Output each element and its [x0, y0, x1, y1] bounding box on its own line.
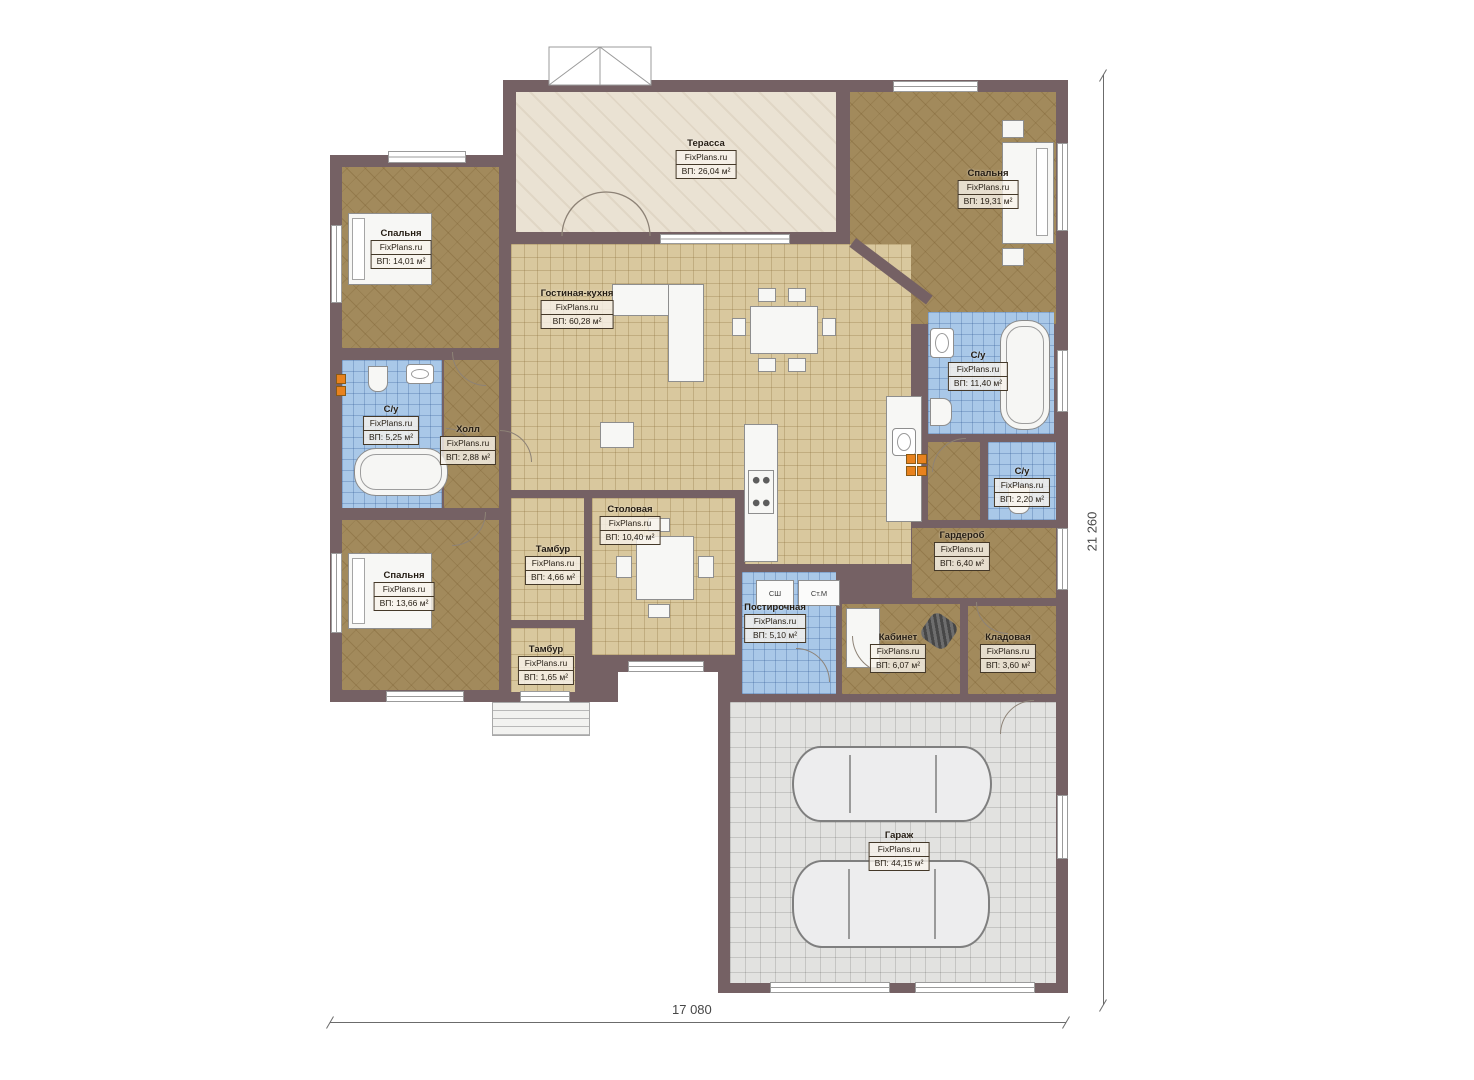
- radiator-marker: [906, 466, 916, 476]
- room-label-living-kitchen: Гостиная-кухня FixPlans.ru ВП: 60,28 м²: [541, 288, 614, 329]
- nightstand: [1002, 120, 1024, 138]
- chair: [648, 604, 670, 618]
- window: [893, 81, 978, 92]
- watermark: FixPlans.ru: [541, 300, 614, 315]
- bed-pillow: [1036, 148, 1048, 236]
- washer-label: Ст.М: [811, 589, 827, 598]
- room-name: Гардероб: [934, 530, 990, 541]
- room-area: ВП: 3,60 м²: [980, 658, 1036, 673]
- room-name: Холл: [440, 424, 496, 435]
- kitchen-sink: [892, 428, 916, 456]
- window: [386, 691, 464, 702]
- sofa: [668, 284, 704, 382]
- watermark: FixPlans.ru: [374, 582, 435, 597]
- window: [1057, 143, 1068, 231]
- bathtub: [354, 448, 448, 496]
- room-label-garage: Гараж FixPlans.ru ВП: 44,15 м²: [869, 830, 930, 871]
- room-name: Кабинет: [870, 632, 926, 643]
- car: [792, 746, 992, 822]
- watermark: FixPlans.ru: [948, 362, 1008, 377]
- watermark: FixPlans.ru: [934, 542, 990, 557]
- garage-door: [915, 982, 1035, 993]
- stove: [748, 470, 774, 514]
- bed-pillow: [352, 558, 365, 624]
- dryer-label: СШ: [769, 589, 781, 598]
- radiator-marker: [917, 454, 927, 464]
- terrace-opening: [660, 234, 790, 244]
- watermark: FixPlans.ru: [440, 436, 496, 451]
- dimension-label-width: 17 080: [672, 1002, 712, 1017]
- garage-door: [770, 982, 890, 993]
- room-name: Столовая: [600, 504, 661, 515]
- watermark: FixPlans.ru: [994, 478, 1050, 493]
- room-area: ВП: 14,01 м²: [371, 254, 432, 269]
- floor-plan: СШ Ст.М Терасса FixPlans.ru ВП: 26,04 м²…: [0, 0, 1474, 1080]
- watermark: FixPlans.ru: [525, 556, 581, 571]
- room-label-vestibule-2: Тамбур FixPlans.ru ВП: 1,65 м²: [518, 644, 574, 685]
- room-area: ВП: 5,25 м²: [363, 430, 419, 445]
- room-name: Тамбур: [525, 544, 581, 555]
- room-area: ВП: 11,40 м²: [948, 376, 1008, 391]
- terrace-steps: [548, 46, 652, 86]
- window: [331, 225, 342, 303]
- terrace-double-door: [560, 190, 652, 236]
- room-label-vestibule-1: Тамбур FixPlans.ru ВП: 4,66 м²: [525, 544, 581, 585]
- watermark: FixPlans.ru: [600, 516, 661, 531]
- watermark: FixPlans.ru: [870, 644, 926, 659]
- room-label-wardrobe: Гардероб FixPlans.ru ВП: 6,40 м²: [934, 530, 990, 571]
- radiator-marker: [917, 466, 927, 476]
- chair: [788, 288, 806, 302]
- room-name: Постирочная: [744, 602, 806, 613]
- bed-pillow: [352, 218, 365, 280]
- room-area: ВП: 26,04 м²: [676, 164, 737, 179]
- chair: [788, 358, 806, 372]
- room-name: Гостиная-кухня: [541, 288, 614, 299]
- entry-door-opening: [520, 691, 570, 702]
- watermark: FixPlans.ru: [676, 150, 737, 165]
- room-area: ВП: 6,40 м²: [934, 556, 990, 571]
- chair: [732, 318, 746, 336]
- room-name: Спальня: [958, 168, 1019, 179]
- radiator-marker: [906, 454, 916, 464]
- toilet: [368, 366, 388, 392]
- room-label-storage: Кладовая FixPlans.ru ВП: 3,60 м²: [980, 632, 1036, 673]
- watermark: FixPlans.ru: [958, 180, 1019, 195]
- nightstand: [1002, 248, 1024, 266]
- chair: [758, 358, 776, 372]
- room-name: Гараж: [869, 830, 930, 841]
- room-area: ВП: 13,66 м²: [374, 596, 435, 611]
- room-label-terrace: Терасса FixPlans.ru ВП: 26,04 м²: [676, 138, 737, 179]
- room-label-bathroom-small: С/у FixPlans.ru ВП: 2,20 м²: [994, 466, 1050, 507]
- room-label-hall: Холл FixPlans.ru ВП: 2,88 м²: [440, 424, 496, 465]
- floor-living-kitchen: [511, 244, 911, 490]
- watermark: FixPlans.ru: [980, 644, 1036, 659]
- room-area: ВП: 2,20 м²: [994, 492, 1050, 507]
- room-area: ВП: 5,10 м²: [744, 628, 806, 643]
- room-area: ВП: 1,65 м²: [518, 670, 574, 685]
- watermark: FixPlans.ru: [363, 416, 419, 431]
- room-name: С/у: [994, 466, 1050, 477]
- window: [331, 553, 342, 633]
- radiator-marker: [336, 386, 346, 396]
- room-label-bathroom-left: С/у FixPlans.ru ВП: 5,25 м²: [363, 404, 419, 445]
- room-area: ВП: 2,88 м²: [440, 450, 496, 465]
- room-label-bedroom-bottomleft: Спальня FixPlans.ru ВП: 13,66 м²: [374, 570, 435, 611]
- room-name: Терасса: [676, 138, 737, 149]
- room-label-office: Кабинет FixPlans.ru ВП: 6,07 м²: [870, 632, 926, 673]
- radiator-marker: [336, 374, 346, 384]
- watermark: FixPlans.ru: [744, 614, 806, 629]
- chair: [616, 556, 632, 578]
- sink: [406, 364, 434, 384]
- watermark: FixPlans.ru: [518, 656, 574, 671]
- dimension-label-height: 21 260: [1084, 512, 1099, 552]
- room-name: Спальня: [374, 570, 435, 581]
- dimension-line-vertical: [1103, 75, 1104, 1005]
- room-label-bedroom-topleft: Спальня FixPlans.ru ВП: 14,01 м²: [371, 228, 432, 269]
- room-area: ВП: 4,66 м²: [525, 570, 581, 585]
- room-label-dining: Столовая FixPlans.ru ВП: 10,40 м²: [600, 504, 661, 545]
- dining-table: [750, 306, 818, 354]
- window: [1057, 350, 1068, 412]
- window: [1057, 528, 1068, 590]
- chair: [822, 318, 836, 336]
- window: [1057, 795, 1068, 859]
- car: [792, 860, 990, 948]
- room-area: ВП: 19,31 м²: [958, 194, 1019, 209]
- room-area: ВП: 60,28 м²: [541, 314, 614, 329]
- window: [388, 151, 466, 163]
- room-area: ВП: 44,15 м²: [869, 856, 930, 871]
- room-name: Спальня: [371, 228, 432, 239]
- entry-steps: [492, 702, 590, 736]
- room-name: С/у: [948, 350, 1008, 361]
- watermark: FixPlans.ru: [869, 842, 930, 857]
- room-area: ВП: 6,07 м²: [870, 658, 926, 673]
- chair: [758, 288, 776, 302]
- room-label-bedroom-topright: Спальня FixPlans.ru ВП: 19,31 м²: [958, 168, 1019, 209]
- chair: [698, 556, 714, 578]
- coffee-table: [600, 422, 634, 448]
- room-area: ВП: 10,40 м²: [600, 530, 661, 545]
- room-name: Кладовая: [980, 632, 1036, 643]
- room-label-bathroom-right: С/у FixPlans.ru ВП: 11,40 м²: [948, 350, 1008, 391]
- dining-table: [636, 536, 694, 600]
- room-name: Тамбур: [518, 644, 574, 655]
- room-name: С/у: [363, 404, 419, 415]
- toilet: [930, 398, 952, 426]
- watermark: FixPlans.ru: [371, 240, 432, 255]
- room-label-laundry: Постирочная FixPlans.ru ВП: 5,10 м²: [744, 602, 806, 643]
- window: [628, 661, 704, 672]
- dimension-line-horizontal: [330, 1022, 1066, 1023]
